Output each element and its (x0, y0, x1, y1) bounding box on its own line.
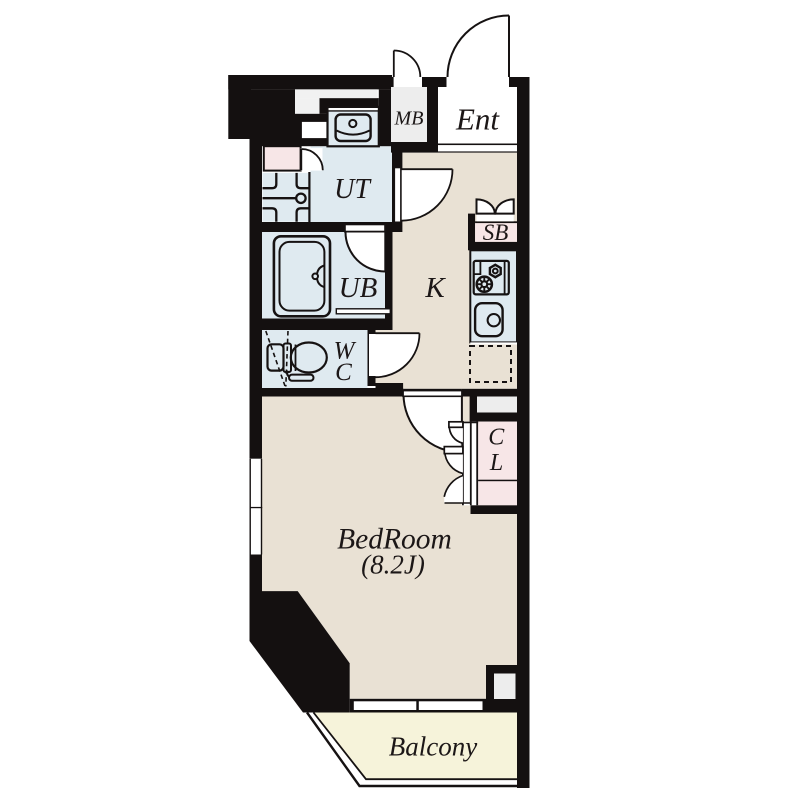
svg-text:Ent: Ent (455, 102, 500, 137)
svg-text:(8.2J): (8.2J) (361, 550, 425, 580)
svg-text:L: L (489, 450, 503, 476)
svg-text:C: C (488, 425, 505, 451)
svg-text:K: K (424, 272, 446, 304)
svg-text:Balcony: Balcony (389, 732, 477, 762)
svg-text:UB: UB (339, 272, 378, 304)
svg-text:MB: MB (394, 108, 424, 130)
svg-text:SB: SB (483, 220, 509, 245)
svg-text:C: C (335, 359, 352, 386)
svg-text:UT: UT (334, 174, 372, 205)
